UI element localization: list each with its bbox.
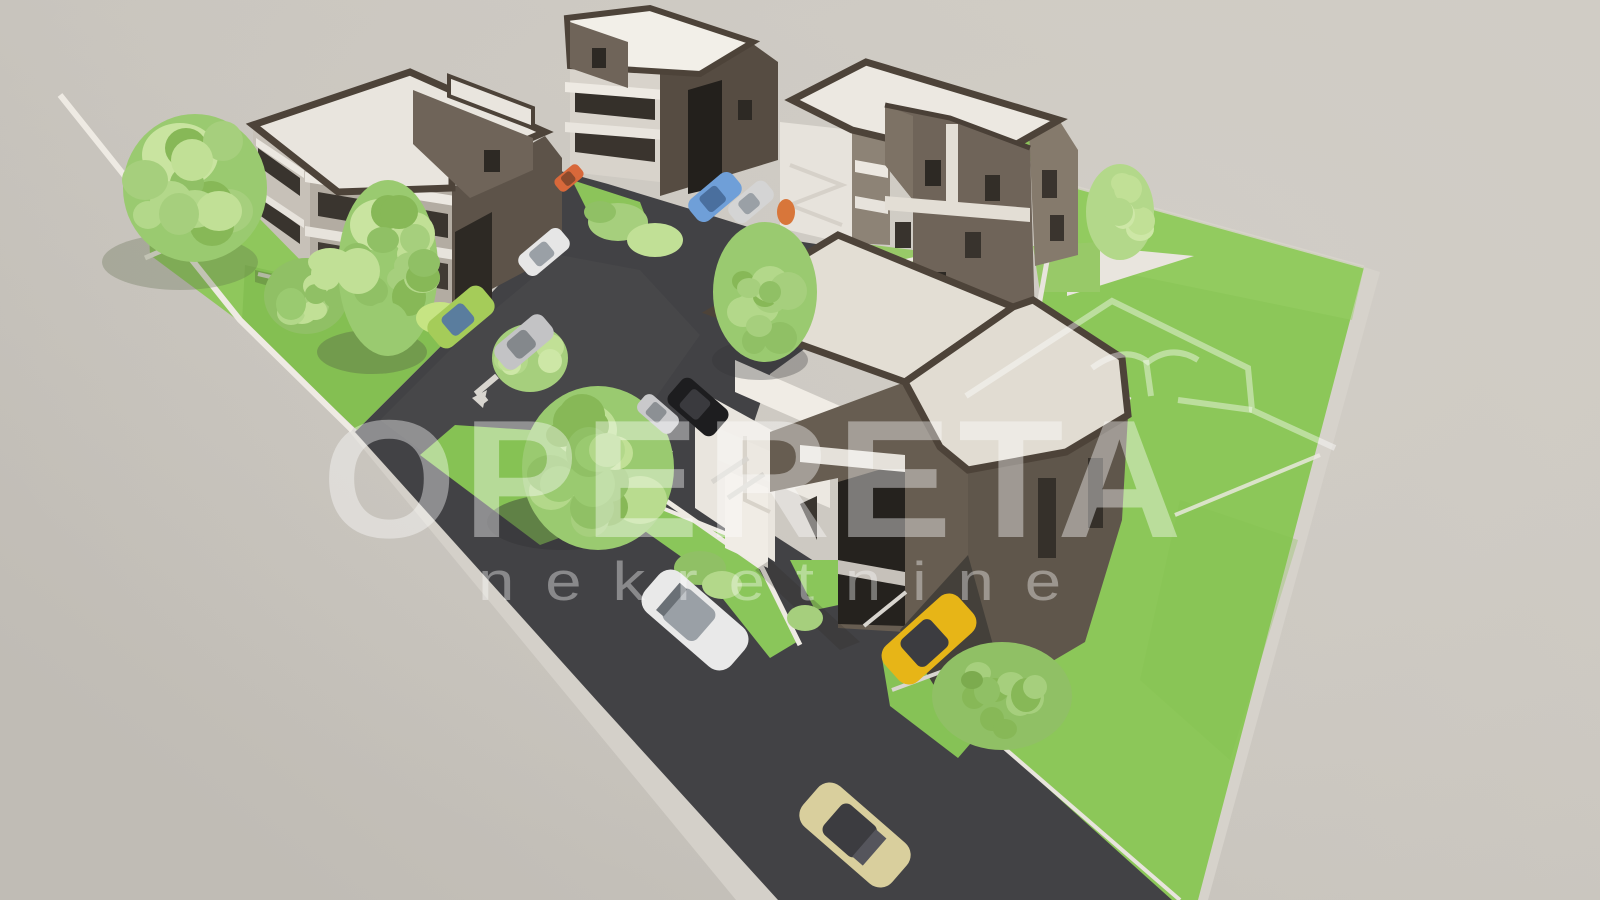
svg-text:OPERETA: OPERETA [322,385,1188,573]
svg-text:nekretnine: nekretnine [478,550,1092,612]
